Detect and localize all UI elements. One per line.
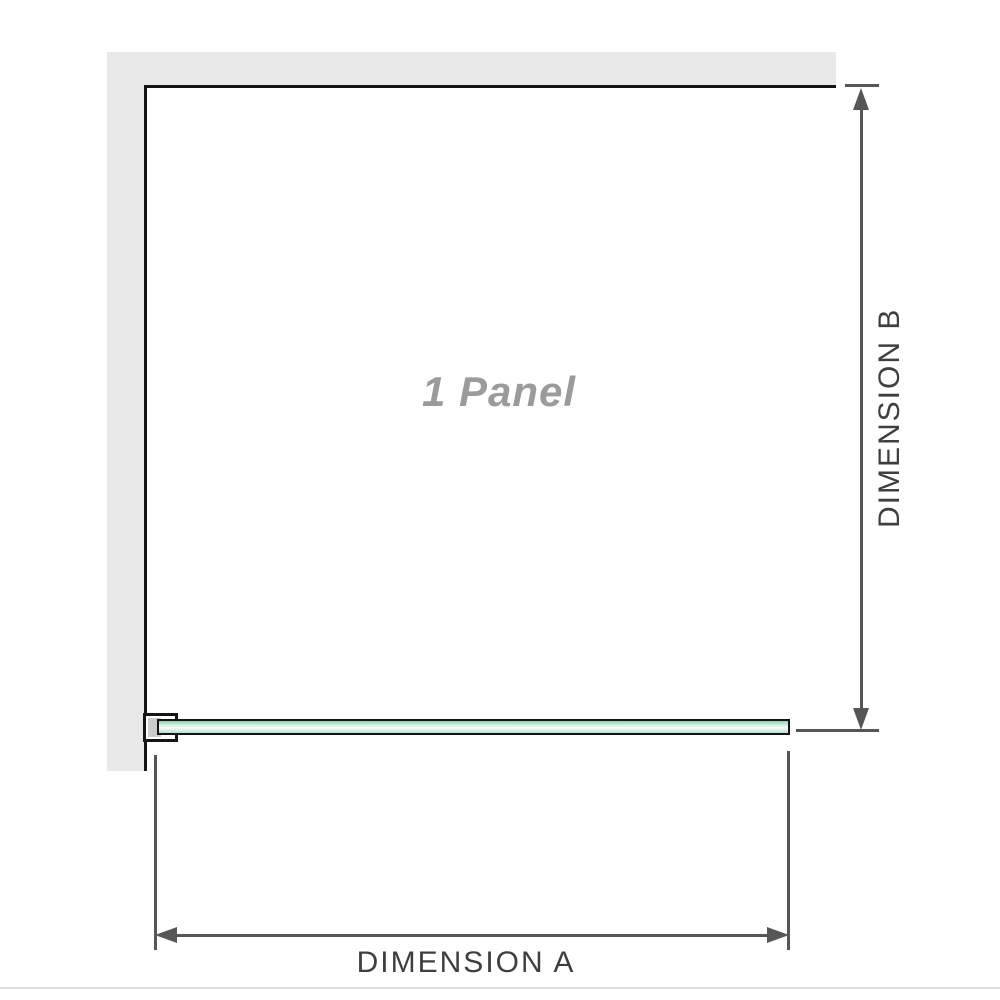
arrow-up-icon — [853, 88, 869, 110]
panel-count-label: 1 Panel — [349, 368, 649, 416]
bottom-divider — [0, 987, 1000, 989]
arrow-down-icon — [853, 708, 869, 730]
panel-outline-top — [144, 85, 836, 88]
arrow-right-icon — [767, 927, 789, 943]
dimension-b-line — [860, 98, 863, 720]
dimension-b-tick-top — [845, 84, 879, 87]
wall-band-top — [107, 52, 836, 85]
wall-band-left — [107, 52, 144, 771]
panel-dimension-diagram: 1 Panel DIMENSION B DIMENSION A — [0, 0, 1000, 1000]
panel-outline-left — [144, 85, 147, 771]
dimension-a-line — [160, 934, 784, 937]
dimension-a-label: DIMENSION A — [266, 946, 666, 980]
arrow-left-icon — [155, 927, 177, 943]
dimension-a-extension-left — [154, 755, 157, 950]
glass-panel-bar — [157, 719, 790, 735]
dimension-a-extension-right — [787, 751, 790, 950]
dimension-b-label: DIMENSION B — [873, 308, 905, 528]
